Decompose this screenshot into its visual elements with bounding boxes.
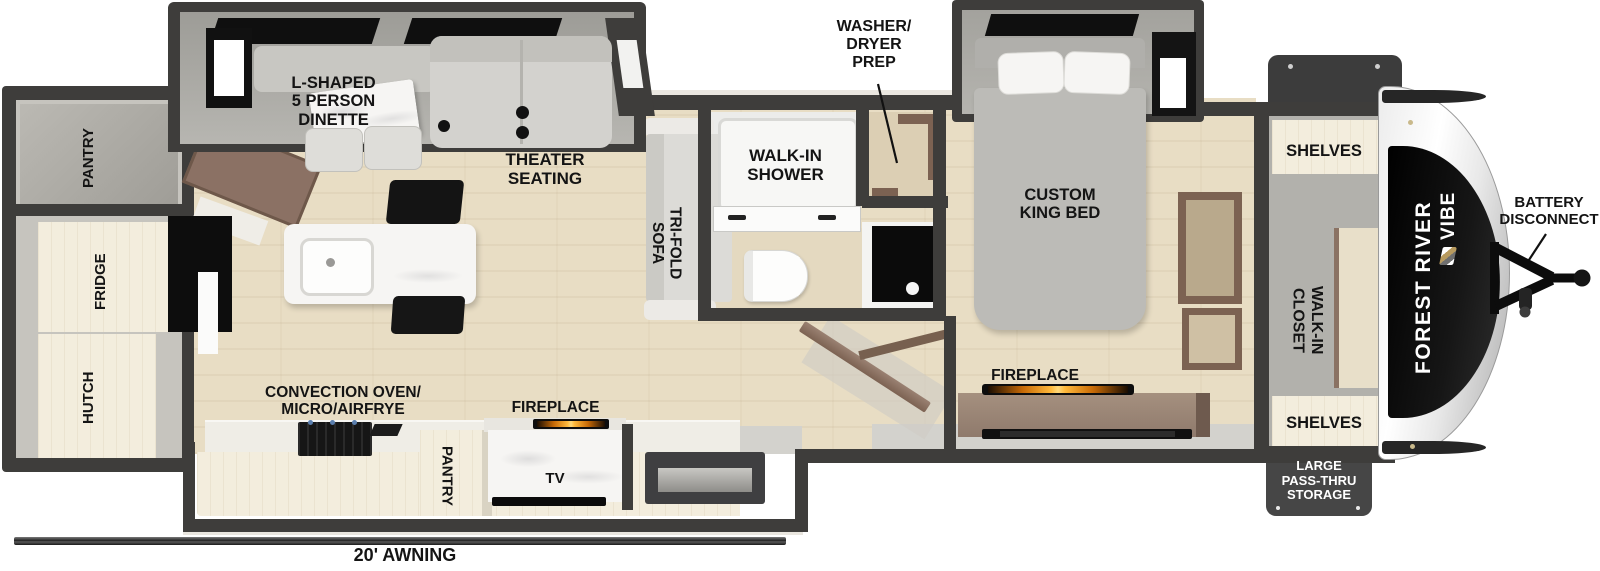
dinette-cushion-right [364,126,422,170]
cooktop-knob-1 [308,420,313,425]
shelves-bottom-label-text: SHELVES [1269,414,1379,432]
range-hood [369,424,402,436]
island-faucet [326,258,335,267]
theater-cupholder-3 [516,126,529,139]
kitchen-fireplace-label: FIREPLACE [488,399,623,416]
kitchen-left-wall [183,442,195,532]
bedroom-fireplace-flame [988,386,1128,393]
battery-label-line1: BATTERY [1498,195,1600,212]
bedroom-wardrobe-lower [1182,308,1242,370]
washer-label: WASHER/ DRYER PREP [818,18,930,72]
dinette-cushion-left [305,128,363,172]
cap-screw-top [1408,120,1413,125]
awning-bar [14,537,786,545]
brand-model-text: VIBE [1438,190,1460,242]
kitchen-pantry-label: PANTRY [438,436,455,516]
hutch-label: HUTCH [80,358,97,438]
brand-maker-text: FOREST RIVER [1412,185,1436,390]
shower-label-line2: SHOWER [713,165,858,184]
shower-door-handle-right [818,215,836,220]
tv-unit-right-wall [622,424,633,510]
shelves-top-label-text: SHELVES [1269,142,1379,160]
bath-left-wall [698,106,711,321]
shelves-bottom-label: SHELVES [1269,414,1379,432]
entry-steps-tread [658,468,752,492]
island-stool-bottom [391,296,466,334]
washer-closet-wall-top [898,114,930,124]
fridge-label: FRIDGE [92,238,109,326]
rear-pantry-label: PANTRY [80,112,97,204]
theater-cupholder-1 [438,120,450,132]
theater-label-line1: THEATER [480,150,610,169]
awning-label-text: 20' AWNING [320,545,490,565]
rear-pantry-room [20,104,178,204]
tv-screen [492,497,606,506]
washer-label-line3: PREP [818,54,930,72]
storage-screw-left [1276,506,1280,510]
shelves-top-label: SHELVES [1269,142,1379,160]
front-cap-roof-edge [1382,90,1486,103]
washer-label-line1: WASHER/ [818,18,930,36]
kitchen-pantry-label-text: PANTRY [438,436,455,516]
bed-pillow-left [997,51,1064,95]
shower-label: WALK-IN SHOWER [713,146,858,184]
bath-vanity [872,226,934,302]
cooktop [298,422,372,456]
shower-door-handle-left [728,215,746,220]
rear-room-divider-wall [8,204,188,216]
bedroom-fireplace-label: FIREPLACE [970,367,1100,384]
top-wall-center [634,95,964,110]
island-sink [300,238,374,296]
kitchen-pantry-cabinet [420,430,492,516]
battery-label-line2: DISCONNECT [1498,212,1600,229]
front-cap-bottom-edge [1382,441,1486,454]
floorplan-canvas: PANTRY FRIDGE HUTCH L-SHAPED 5 PERSON DI… [0,0,1600,571]
dinette-label: L-SHAPED 5 PERSON DINETTE [256,74,411,129]
rear-doorway-gap [198,272,218,354]
closet-left-wall [1254,102,1269,462]
kitchen-fireplace-flame [537,421,605,427]
bedroom-wardrobe-upper [1178,192,1242,304]
bedroom-divider-wall [944,316,956,456]
washer-bottom-wall [862,196,948,208]
bedroom-fireplace-label-text: FIREPLACE [970,367,1100,384]
top-wall-front [1198,102,1394,116]
living-window-pane [214,40,244,96]
king-bed-label-line2: KING BED [1000,204,1120,222]
bath-bottom-wall [705,308,945,321]
theater-label-line2: SEATING [480,169,610,188]
island-stool-top [386,180,465,224]
closet-label-line2: CLOSET [1288,240,1306,400]
dinette-label-line1: L-SHAPED [256,74,411,92]
dinette-label-line2: 5 PERSON [256,92,411,110]
bed-window-pane [1160,58,1186,108]
tv-label-text: TV [530,471,580,488]
storage-label: LARGE PASS-THRU STORAGE [1266,459,1372,503]
bed-slide-skylight [985,14,1139,36]
hitch-coupler-knob [1574,270,1591,287]
storage-label-line3: STORAGE [1266,488,1372,503]
king-bed-label-line1: CUSTOM [1000,186,1120,204]
storage-label-line2: PASS-THRU [1266,474,1372,489]
dinette-label-line3: DINETTE [256,111,411,129]
awning-label: 20' AWNING [320,545,490,565]
hutch-cabinet [38,334,156,458]
propane-cover-screw-left [1288,64,1293,69]
tv-unit-face [488,430,622,502]
hitch-jack-wheel [1520,307,1531,318]
toilet [744,250,808,302]
vanity-sink [906,282,919,295]
sofa-label-line1: TRI-FOLD [666,186,684,301]
propane-cover-screw-right [1375,64,1380,69]
tv-label: TV [530,471,580,488]
sofa-label: TRI-FOLD SOFA [648,186,684,301]
hitch-jack [1519,288,1532,310]
closet-label-line1: WALK-IN [1306,240,1324,400]
cooktop-knob-2 [330,420,335,425]
theater-cupholder-2 [516,106,529,119]
kitchen-fireplace-label-text: FIREPLACE [488,399,623,416]
washer-label-line2: DRYER [818,36,930,54]
storage-screw-right [1356,506,1360,510]
battery-pointer-line [1525,234,1546,266]
storage-label-line1: LARGE [1266,459,1372,474]
kitchen-bottom-wall [183,519,803,532]
king-bed-label: CUSTOM KING BED [1000,186,1120,223]
cap-screw-bottom [1410,444,1415,449]
bath-right-wall [933,106,946,318]
sofa-label-line2: SOFA [648,186,666,301]
appliance-label-line1: CONVECTION OVEN/ [218,384,468,401]
cooktop-knob-3 [352,420,357,425]
appliance-label-line2: MICRO/AIRFRYE [218,401,468,418]
shower-label-line1: WALK-IN [713,146,858,165]
battery-label: BATTERY DISCONNECT [1498,195,1600,229]
theater-label: THEATER SEATING [480,150,610,188]
appliance-label: CONVECTION OVEN/ MICRO/AIRFRYE [218,384,468,419]
washer-closet-wall-bottom [872,188,898,196]
closet-label: WALK-IN CLOSET [1288,240,1325,400]
bedroom-tv-mount-inner [1000,431,1175,437]
bed-pillow-right [1063,51,1130,95]
